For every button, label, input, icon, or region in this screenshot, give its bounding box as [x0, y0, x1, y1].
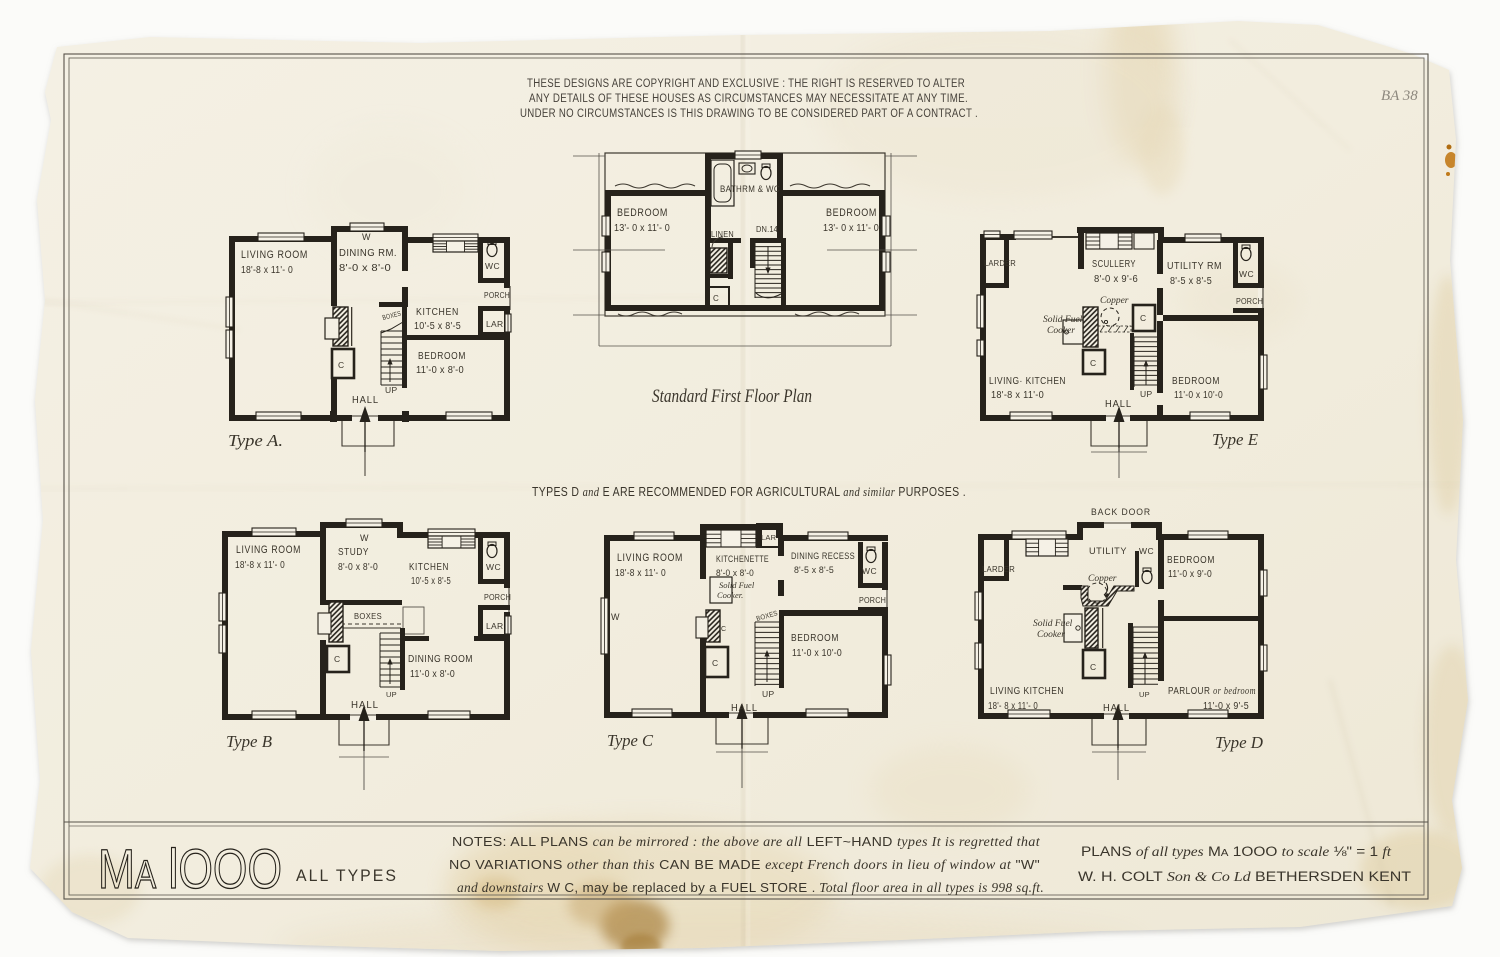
svg-text:UNDER NO CIRCUMSTANCES IS: UNDER NO CIRCUMSTANCES IS THIS DRAWING T… [520, 106, 978, 120]
svg-text:UP: UP [1140, 389, 1152, 399]
svg-text:DINING RECESS: DINING RECESS [791, 551, 855, 562]
svg-text:13'- 0 x 11'- 0: 13'- 0 x 11'- 0 [823, 222, 879, 234]
svg-text:UP: UP [385, 385, 397, 395]
svg-text:PORCH: PORCH [859, 595, 886, 605]
svg-text:W: W [362, 232, 371, 242]
svg-text:Copper: Copper [1100, 296, 1129, 306]
svg-text:LIVING KITCHEN: LIVING KITCHEN [990, 685, 1064, 697]
svg-text:8'-5 x 8'-5: 8'-5 x 8'-5 [794, 565, 834, 576]
svg-text:18'- 8 x 11'- 0: 18'- 8 x 11'- 0 [988, 701, 1038, 712]
svg-text:W: W [611, 612, 620, 622]
svg-text:18'-8 x 11'- 0: 18'-8 x 11'- 0 [615, 567, 666, 579]
svg-text:LINEN: LINEN [711, 230, 734, 239]
svg-text:Copper: Copper [1088, 574, 1117, 584]
svg-text:LIVING ROOM: LIVING ROOM [241, 249, 308, 261]
svg-text:W: W [360, 533, 369, 543]
svg-text:BA 38: BA 38 [1381, 88, 1418, 104]
svg-text:PORCH: PORCH [484, 290, 510, 300]
svg-text:11'-0 x 9'-0: 11'-0 x 9'-0 [1168, 569, 1212, 580]
svg-text:KITCHEN: KITCHEN [416, 306, 459, 318]
svg-text:TYPES D and E ARE RECOMMEND: TYPES D and E ARE RECOMMENDED FOR AGRICU… [532, 485, 966, 499]
svg-text:Type E: Type E [1212, 430, 1259, 449]
svg-text:C: C [721, 626, 726, 633]
svg-text:DINING ROOM: DINING ROOM [408, 653, 473, 665]
svg-text:PORCH: PORCH [1236, 296, 1263, 306]
svg-text:8'-0 x 8'-0: 8'-0 x 8'-0 [338, 562, 378, 573]
svg-text:18'-8 x 11'-0: 18'-8 x 11'-0 [991, 390, 1044, 401]
svg-text:UP: UP [762, 689, 774, 699]
svg-text:10'-5 x 8'-5: 10'-5 x 8'-5 [411, 576, 451, 587]
svg-text:WC: WC [485, 261, 500, 271]
svg-text:LAR: LAR [761, 533, 777, 542]
svg-text:11'-0 x 10'-0: 11'-0 x 10'-0 [792, 648, 842, 659]
svg-text:NO VARIATIONS other than this: NO VARIATIONS other than this CAN BE MAD… [449, 857, 1040, 872]
svg-text:KITCHEN: KITCHEN [409, 561, 449, 573]
svg-text:HALL: HALL [731, 702, 758, 714]
svg-text:8'-0 x 8'-0: 8'-0 x 8'-0 [716, 568, 754, 579]
svg-text:18'-8 x 11'- 0: 18'-8 x 11'- 0 [241, 264, 293, 276]
svg-text:8'-0 x 8'-0: 8'-0 x 8'-0 [339, 262, 391, 274]
svg-text:UP: UP [386, 690, 397, 699]
svg-text:THESE DESIGNS ARE COPYRIGHT: THESE DESIGNS ARE COPYRIGHT AND EXCLUSIV… [527, 76, 965, 90]
svg-text:11'-0 x 8'-0: 11'-0 x 8'-0 [410, 669, 455, 680]
svg-text:BEDROOM: BEDROOM [826, 207, 877, 219]
svg-text:LIVING· KITCHEN: LIVING· KITCHEN [989, 375, 1066, 387]
svg-text:BEDROOM: BEDROOM [791, 632, 839, 644]
svg-text:UTILITY RM: UTILITY RM [1167, 261, 1222, 272]
svg-text:and downstairs W C, may be rep: and downstairs W C, may be replaced by a… [457, 880, 1044, 895]
svg-text:Type D: Type D [1215, 733, 1264, 752]
svg-text:LAR: LAR [486, 621, 503, 631]
svg-text:HALL: HALL [1105, 398, 1132, 410]
svg-text:ANY DETAILS OF THESE HOUSE: ANY DETAILS OF THESE HOUSES AS CIRCUMSTA… [529, 91, 968, 105]
svg-text:18'-8 x 11'- 0: 18'-8 x 11'- 0 [235, 559, 285, 571]
svg-text:C: C [712, 658, 718, 668]
svg-text:WC: WC [1139, 546, 1154, 556]
svg-text:BEDROOM: BEDROOM [1167, 554, 1215, 566]
svg-text:8'-0 x 9'-6: 8'-0 x 9'-6 [1094, 274, 1138, 285]
svg-text:LARDER: LARDER [984, 258, 1016, 268]
svg-text:KITCHENETTE: KITCHENETTE [716, 554, 769, 565]
svg-text:HALL: HALL [352, 394, 379, 406]
svg-text:10'-5 x 8'-5: 10'-5 x 8'-5 [414, 321, 461, 332]
svg-text:NOTES: ALL PLANS can be mir: NOTES: ALL PLANS can be mirrored : the a… [452, 834, 1040, 849]
svg-text:Type C: Type C [607, 731, 654, 750]
svg-text:Solid Fuel: Solid Fuel [719, 580, 755, 590]
svg-text:Standard First Floor Plan: Standard First Floor Plan [652, 387, 812, 407]
svg-text:UP: UP [1139, 690, 1150, 699]
svg-text:C: C [334, 654, 340, 664]
svg-text:BEDROOM: BEDROOM [418, 350, 466, 362]
svg-text:Cooker: Cooker [1037, 630, 1065, 640]
svg-text:C: C [1140, 313, 1146, 323]
svg-text:BATHRM & WC: BATHRM & WC [720, 184, 780, 194]
svg-text:LIVING ROOM: LIVING ROOM [617, 552, 683, 564]
svg-text:BEDROOM: BEDROOM [1172, 375, 1220, 387]
svg-text:11'-0 x 8'-0: 11'-0 x 8'-0 [416, 365, 464, 376]
svg-text:LAR: LAR [486, 319, 503, 329]
svg-text:W. H. COLT Son & Co Ld BETHER: W. H. COLT Son & Co Ld BETHERSDEN KENT [1078, 869, 1411, 884]
svg-text:C: C [1090, 358, 1096, 368]
svg-text:C: C [713, 294, 719, 303]
svg-text:MA lOOO: MA lOOO [98, 837, 282, 900]
svg-text:11'-0 x 9'-5: 11'-0 x 9'-5 [1203, 701, 1249, 712]
svg-text:WC: WC [486, 562, 501, 572]
svg-text:Cooker.: Cooker. [717, 590, 743, 600]
svg-text:PLANS of all types MA 1OOO to: PLANS of all types MA 1OOO to scale ⅛" =… [1081, 844, 1391, 859]
svg-text:Solid Fuel: Solid Fuel [1033, 619, 1073, 629]
svg-text:DINING RM.: DINING RM. [339, 247, 397, 259]
svg-text:11'-0 x 10'-0: 11'-0 x 10'-0 [1174, 390, 1223, 401]
svg-text:C: C [338, 360, 344, 370]
svg-text:PORCH: PORCH [484, 592, 511, 602]
svg-text:HALL: HALL [1103, 702, 1130, 714]
svg-text:HALL: HALL [351, 699, 379, 711]
svg-text:WC: WC [862, 566, 877, 576]
svg-text:DN.14: DN.14 [756, 225, 778, 234]
svg-text:13'- 0 x 11'- 0: 13'- 0 x 11'- 0 [614, 222, 670, 234]
svg-text:Cooker: Cooker [1047, 326, 1075, 336]
svg-text:STUDY: STUDY [338, 546, 369, 558]
svg-text:Type A.: Type A. [228, 431, 283, 450]
svg-text:ALL TYPES: ALL TYPES [296, 866, 398, 885]
svg-text:8'-5 x 8'-5: 8'-5 x 8'-5 [1170, 276, 1212, 287]
svg-text:WC: WC [1239, 269, 1254, 279]
svg-text:BEDROOM: BEDROOM [617, 207, 668, 219]
svg-text:C: C [1090, 662, 1096, 672]
svg-text:BOXES: BOXES [354, 611, 382, 621]
svg-text:PARLOUR or bedroom: PARLOUR or bedroom [1168, 685, 1256, 697]
svg-text:SCULLERY: SCULLERY [1092, 259, 1136, 270]
svg-text:LARDER: LARDER [982, 564, 1015, 574]
svg-text:Type B: Type B [226, 732, 273, 751]
svg-text:LIVING ROOM: LIVING ROOM [236, 544, 301, 556]
svg-text:BACK DOOR: BACK DOOR [1091, 507, 1151, 518]
svg-text:Solid Fuel: Solid Fuel [1043, 315, 1083, 325]
svg-text:UTILITY: UTILITY [1089, 546, 1127, 557]
